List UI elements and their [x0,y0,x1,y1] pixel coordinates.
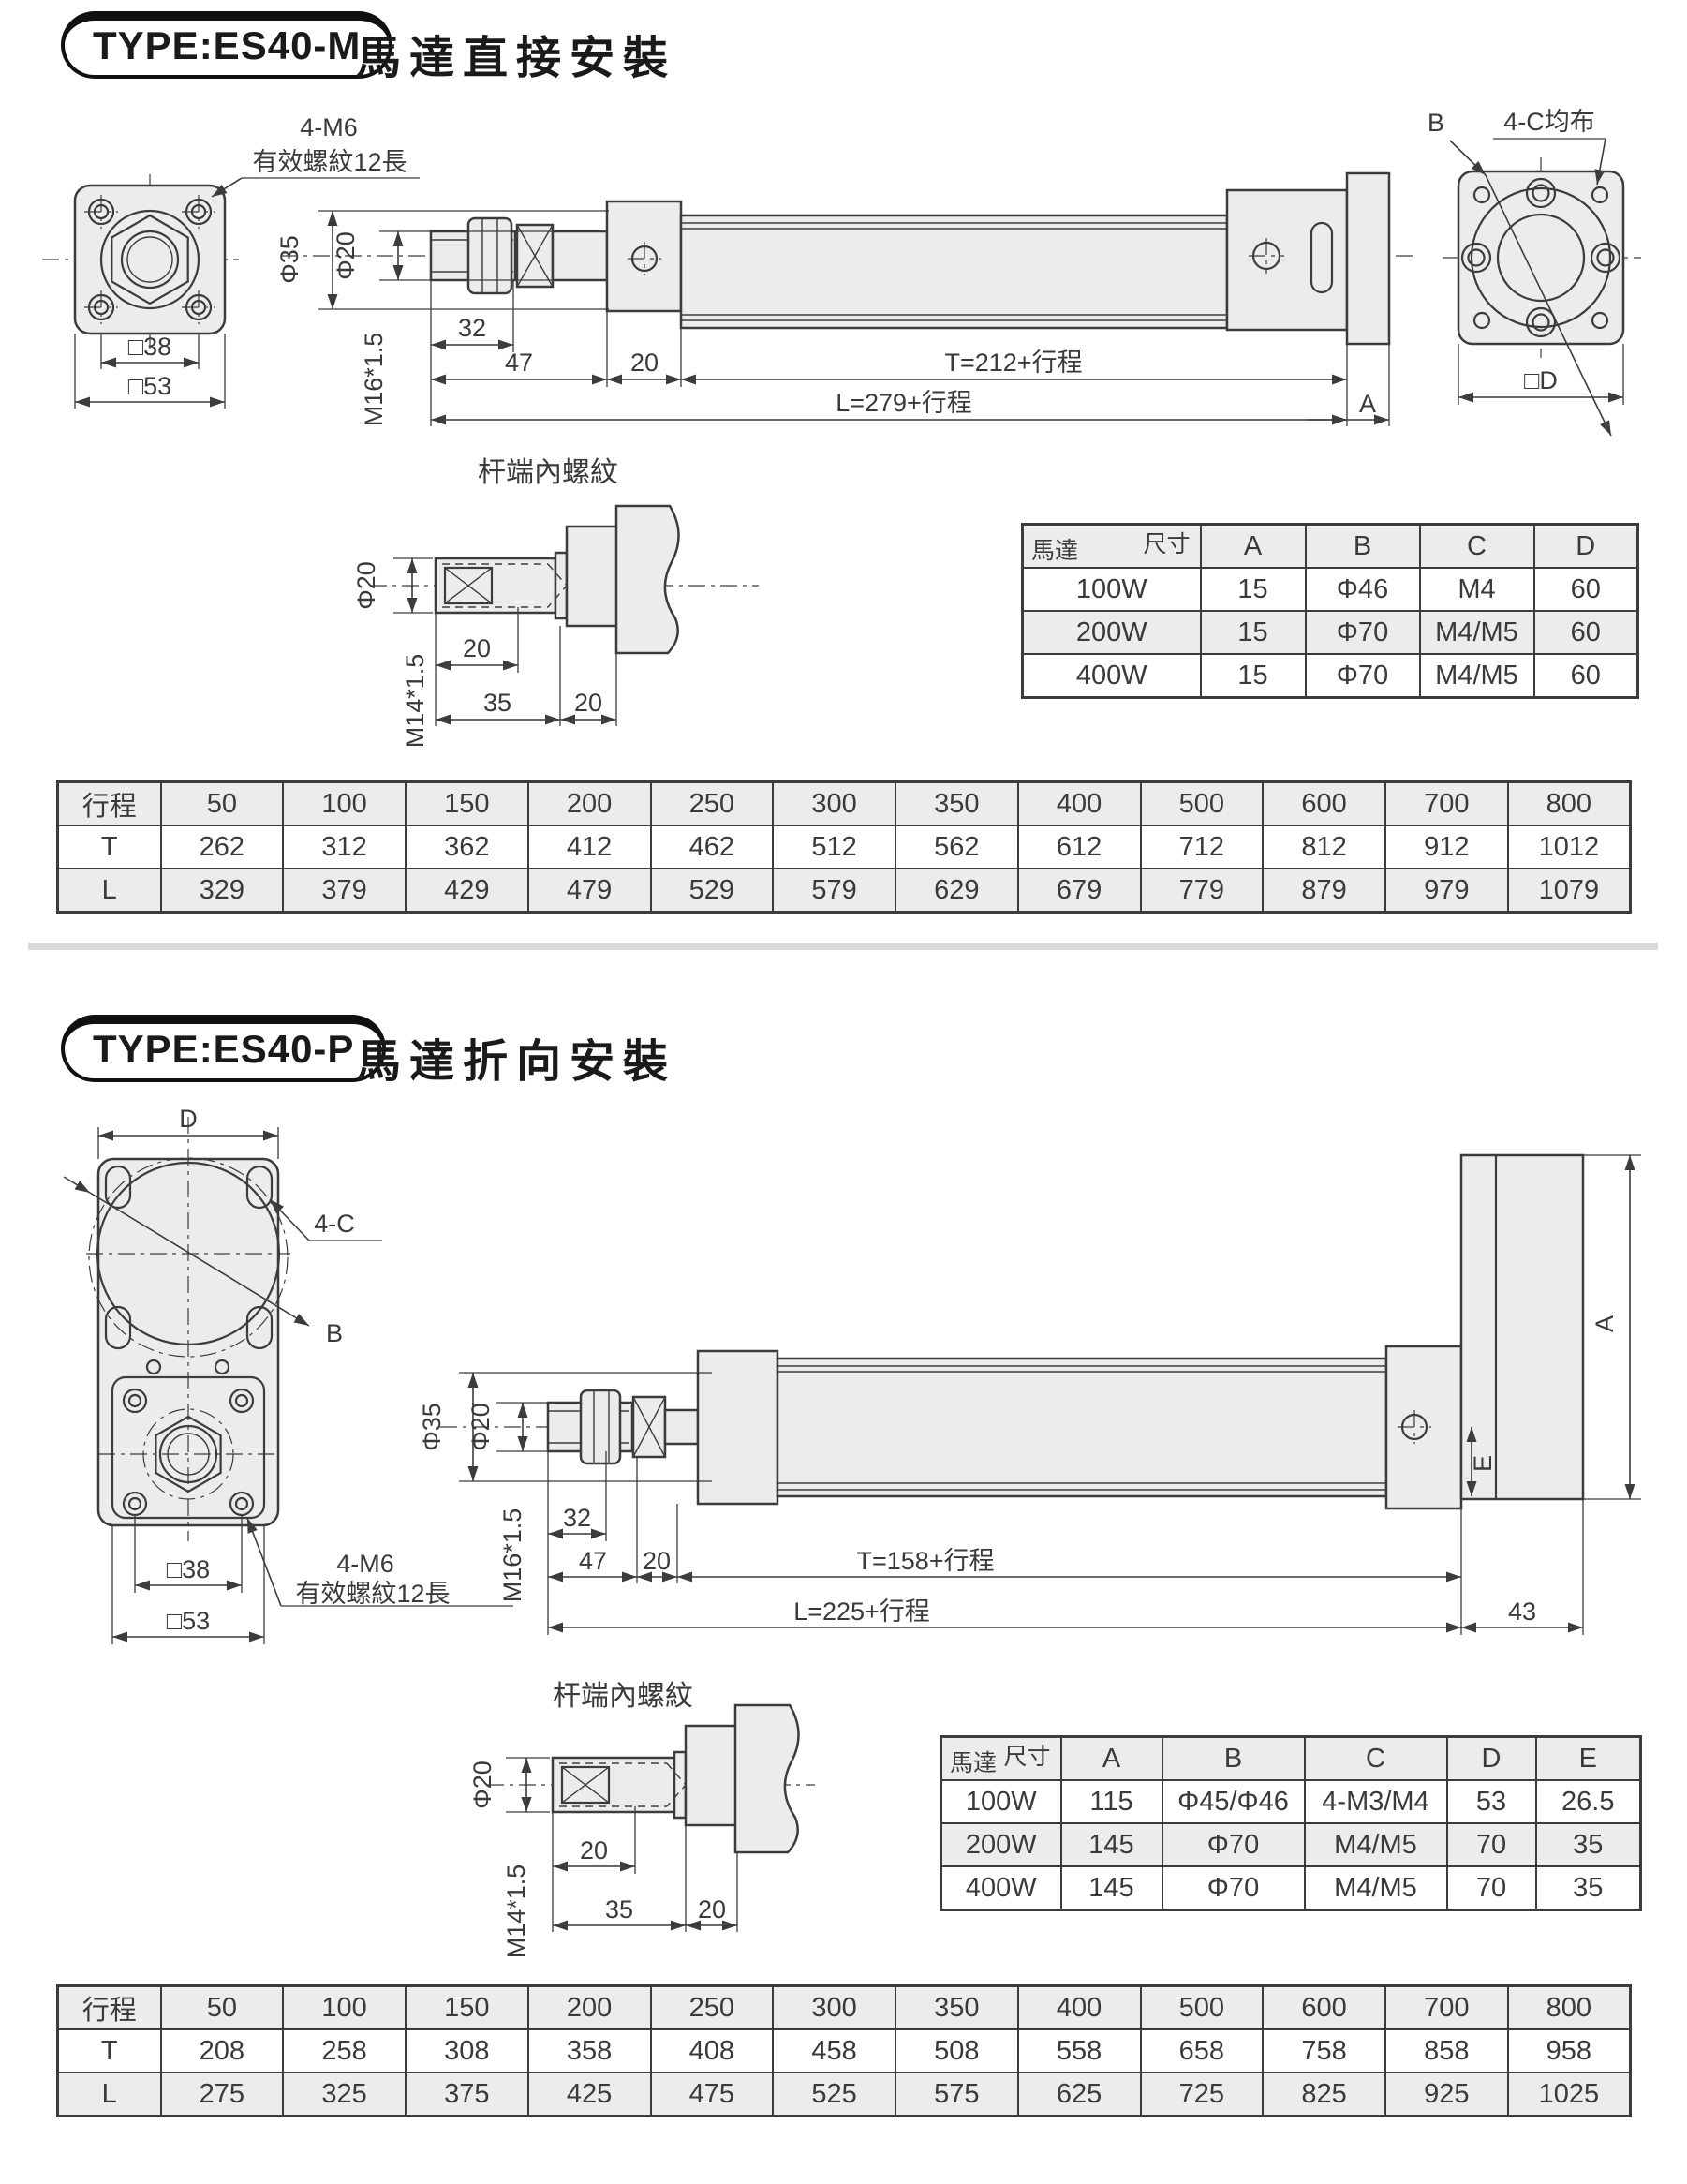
table-cell: 500 [1141,1986,1264,2030]
table-cell: 15 [1201,654,1306,698]
table-cell: 4-M3/M4 [1305,1780,1447,1823]
dim-E-p: E [1469,1455,1497,1472]
table-cell: Φ70 [1162,1823,1305,1866]
table-cell: 200 [528,782,651,826]
table-cell: 379 [283,869,406,913]
table-cell: 35 [1536,1823,1641,1866]
table-cell: 700 [1385,782,1508,826]
table-cell: 912 [1385,825,1508,869]
table-cell: 262 [161,825,284,869]
table-cell: 50 [161,1986,284,2030]
motor-dimension-table-es40-p: 尺寸馬達ABCDE100W115Φ45/Φ464-M3/M45326.5200W… [940,1735,1642,1911]
table-cell: 400 [1018,1986,1141,2030]
diagonal-header-cell: 尺寸馬達 [941,1737,1061,1781]
table-cell: L [58,869,161,913]
table-cell: 150 [406,782,528,826]
table-cell: 312 [283,825,406,869]
rod-dim-m14: M14*1.5 [401,654,429,749]
table-cell: 362 [406,825,528,869]
table-row: 200W15Φ70M4/M560 [1023,611,1638,654]
table-cell: 258 [283,2029,406,2073]
label-B-p: B [326,1319,343,1347]
dim-sq53: □53 [128,372,171,400]
table-cell: 475 [651,2073,774,2117]
dim-47: 47 [505,349,533,377]
table-cell: C [1305,1737,1447,1781]
table-cell: 329 [161,869,284,913]
dim-47-p: 47 [579,1547,607,1575]
table-cell: 500 [1141,782,1264,826]
side-view: Φ35 Φ20 M16*1.5 32 47 20 T=212+行程 L=279+… [275,173,1414,426]
rod-dim-35: 35 [483,689,511,717]
table-cell: 700 [1385,1986,1508,2030]
table-cell: 925 [1385,2073,1508,2117]
table-row: T208258308358408458508558658758858958 [58,2029,1631,2073]
motor-end-view: B 4-C均布 □D [1428,108,1641,436]
table-cell: 26.5 [1536,1780,1641,1823]
table-cell: 958 [1508,2029,1631,2073]
table-cell: 462 [651,825,774,869]
dim-32: 32 [458,314,486,342]
diag-label-top: 尺寸 [1003,1738,1050,1772]
table-cell: Φ45/Φ46 [1162,1780,1305,1823]
section-divider [28,943,1658,950]
rod-end-title: 杆端內螺紋 [478,457,618,488]
dim-43-p: 43 [1508,1597,1536,1626]
table-cell: 429 [406,869,528,913]
table-cell: 1079 [1508,869,1631,913]
rod-dim-dia20: Φ20 [352,561,380,610]
table-cell: 308 [406,2029,528,2073]
table-cell: 425 [528,2073,651,2117]
table-cell: 712 [1141,825,1264,869]
table-cell: 562 [895,825,1018,869]
table-cell: 679 [1018,869,1141,913]
table-cell: 358 [528,2029,651,2073]
dim-dia35: Φ35 [275,235,303,284]
dim-20: 20 [630,349,659,377]
table-cell: M4/M5 [1420,611,1534,654]
table-cell: M4/M5 [1420,654,1534,698]
table-cell: 250 [651,1986,774,2030]
table-cell: 612 [1018,825,1141,869]
table-cell: 300 [773,782,895,826]
dim-32-p: 32 [563,1504,591,1532]
table-cell: 600 [1263,1986,1385,2030]
rod-dim-m14-p: M14*1.5 [502,1865,530,1959]
table-cell: 725 [1141,2073,1264,2117]
table-cell: A [1201,525,1306,569]
datasheet-page: TYPE:ES40-M 馬達直接安裝 [0,0,1687,2184]
front-flange-view-p: D [64,1106,513,1644]
table-cell: 150 [406,1986,528,2030]
table-cell: 200 [528,1986,651,2030]
rod-dim-20a-p: 20 [580,1836,608,1865]
type-badge-es40-p: TYPE:ES40-P [61,1015,386,1082]
table-cell: 200W [1023,611,1201,654]
diag-label-bottom: 馬達 [950,1745,997,1778]
section2-title: 馬達折向安裝 [356,1024,676,1090]
table-cell: 100W [1023,568,1201,611]
table-cell: 350 [895,782,1018,826]
thread-note-line2-p: 有效螺紋12長 [295,1580,450,1608]
table-cell: 408 [651,2029,774,2073]
table-cell: T [58,825,161,869]
table-cell: 400W [1023,654,1201,698]
rod-end-title-p: 杆端內螺紋 [553,1681,693,1712]
dim-sq38: □38 [128,333,171,361]
table-row: 400W145Φ70M4/M57035 [941,1866,1641,1910]
diag-label-bottom: 馬達 [1031,532,1078,566]
table-cell: D [1534,525,1638,569]
table-cell: 825 [1263,2073,1385,2117]
table-row: 行程50100150200250300350400500600700800 [58,1986,1631,2030]
type-badge-es40-m: TYPE:ES40-M [61,11,392,79]
table-cell: M4 [1420,568,1534,611]
dim-L-p: L=225+行程 [793,1597,930,1626]
table-cell: B [1306,525,1420,569]
table-cell: Φ46 [1306,568,1420,611]
table-cell: 15 [1201,568,1306,611]
table-cell: 625 [1018,2073,1141,2117]
dim-m16: M16*1.5 [360,333,388,427]
table-cell: Φ70 [1306,654,1420,698]
dim-sq53-p: □53 [167,1607,210,1635]
table-row: 尺寸馬達ABCD [1023,525,1638,569]
table-cell: 350 [895,1986,1018,2030]
rod-end-detail: 杆端內螺紋 Φ20 20 M14*1.5 35 20 [352,457,759,748]
table-cell: 275 [161,2073,284,2117]
table-cell: 879 [1263,869,1385,913]
table-row: L3293794294795295796296797798799791079 [58,869,1631,913]
table-cell: 512 [773,825,895,869]
rod-dim-20b: 20 [574,689,602,717]
dim-20-p: 20 [643,1547,671,1575]
table-cell: 508 [895,2029,1018,2073]
table-cell: 1012 [1508,825,1631,869]
table-row: 200W145Φ70M4/M57035 [941,1823,1641,1866]
table-row: 100W115Φ45/Φ464-M3/M45326.5 [941,1780,1641,1823]
stroke-table-es40-m: 行程50100150200250300350400500600700800T26… [56,780,1632,914]
table-cell: A [1061,1737,1162,1781]
table-cell: 200W [941,1823,1061,1866]
rod-dim-35-p: 35 [605,1895,633,1924]
motor-dimension-table-es40-m: 尺寸馬達ABCD100W15Φ46M460200W15Φ70M4/M560400… [1021,523,1639,699]
table-cell: 558 [1018,2029,1141,2073]
table-row: L2753253754254755255756257258259251025 [58,2073,1631,2117]
table-cell: 145 [1061,1823,1162,1866]
table-cell: 412 [528,825,651,869]
table-cell: M4/M5 [1305,1866,1447,1910]
table-cell: 60 [1534,654,1638,698]
table-cell: 60 [1534,611,1638,654]
table-row: 400W15Φ70M4/M560 [1023,654,1638,698]
table-cell: M4/M5 [1305,1823,1447,1866]
label-B: B [1428,109,1444,137]
table-cell: 812 [1263,825,1385,869]
table-cell: 250 [651,782,774,826]
table-cell: Φ70 [1162,1866,1305,1910]
table-cell: 658 [1141,2029,1264,2073]
table-cell: 70 [1447,1866,1536,1910]
table-row: T2623123624124625125626127128129121012 [58,825,1631,869]
rod-dim-20b-p: 20 [698,1895,726,1924]
table-cell: 858 [1385,2029,1508,2073]
table-cell: 行程 [58,782,161,826]
table-cell: 100 [283,782,406,826]
table-cell: 579 [773,869,895,913]
table-cell: 行程 [58,1986,161,2030]
table-cell: 629 [895,869,1018,913]
table-cell: 979 [1385,869,1508,913]
diag-label-top: 尺寸 [1143,526,1190,559]
rod-dim-dia20-p: Φ20 [468,1761,496,1809]
table-cell: 60 [1534,568,1638,611]
rod-end-detail-p: 杆端內螺紋 Φ20 20 M14*1.5 35 20 [468,1681,815,1958]
thread-note-line1: 4-M6 [300,113,358,141]
table-cell: B [1162,1737,1305,1781]
note-4c: 4-C均布 [1503,108,1595,136]
table-cell: 325 [283,2073,406,2117]
table-cell: D [1447,1737,1536,1781]
dim-dia20-p: Φ20 [466,1403,495,1451]
table-row: 行程50100150200250300350400500600700800 [58,782,1631,826]
stroke-table-es40-p: 行程50100150200250300350400500600700800T20… [56,1984,1632,2117]
table-cell: Φ70 [1306,611,1420,654]
table-cell: 779 [1141,869,1264,913]
table-cell: 458 [773,2029,895,2073]
table-cell: 300 [773,1986,895,2030]
table-row: 尺寸馬達ABCDE [941,1737,1641,1781]
dim-m16-p: M16*1.5 [498,1508,526,1603]
dim-sq38-p: □38 [167,1555,210,1583]
table-cell: 479 [528,869,651,913]
table-cell: 70 [1447,1823,1536,1866]
table-cell: 1025 [1508,2073,1631,2117]
table-cell: 115 [1061,1780,1162,1823]
table-cell: 15 [1201,611,1306,654]
table-cell: E [1536,1737,1641,1781]
table-cell: 600 [1263,782,1385,826]
thread-note-line1-p: 4-M6 [336,1550,394,1578]
side-view-p: Φ35 Φ20 M16*1.5 32 47 20 T=158+行程 L=225+… [418,1155,1641,1635]
dim-dia20: Φ20 [332,231,360,280]
table-cell: 100W [941,1780,1061,1823]
table-cell: 375 [406,2073,528,2117]
table-cell: 800 [1508,782,1631,826]
label-4c-p: 4-C [314,1210,355,1238]
table-cell: 800 [1508,1986,1631,2030]
table-cell: 400 [1018,782,1141,826]
table-cell: 400W [941,1866,1061,1910]
diagonal-header-cell: 尺寸馬達 [1023,525,1201,569]
table-cell: 35 [1536,1866,1641,1910]
table-cell: 575 [895,2073,1018,2117]
dim-A: A [1359,390,1376,418]
table-cell: L [58,2073,161,2117]
table-cell: 100 [283,1986,406,2030]
dim-sqD: □D [1524,366,1558,394]
dim-T-p: T=158+行程 [856,1547,994,1575]
table-cell: 50 [161,782,284,826]
table-cell: 208 [161,2029,284,2073]
thread-note-line2: 有效螺紋12長 [252,148,407,176]
table-cell: 758 [1263,2029,1385,2073]
table-cell: C [1420,525,1534,569]
dim-L: L=279+行程 [836,389,972,417]
table-cell: 529 [651,869,774,913]
table-cell: 525 [773,2073,895,2117]
table-cell: 53 [1447,1780,1536,1823]
table-row: 100W15Φ46M460 [1023,568,1638,611]
rod-dim-20a: 20 [463,634,491,662]
table-cell: 145 [1061,1866,1162,1910]
dim-dia35-p: Φ35 [418,1403,446,1451]
dim-T: T=212+行程 [944,349,1082,377]
table-cell: T [58,2029,161,2073]
dim-A-p: A [1591,1315,1619,1332]
